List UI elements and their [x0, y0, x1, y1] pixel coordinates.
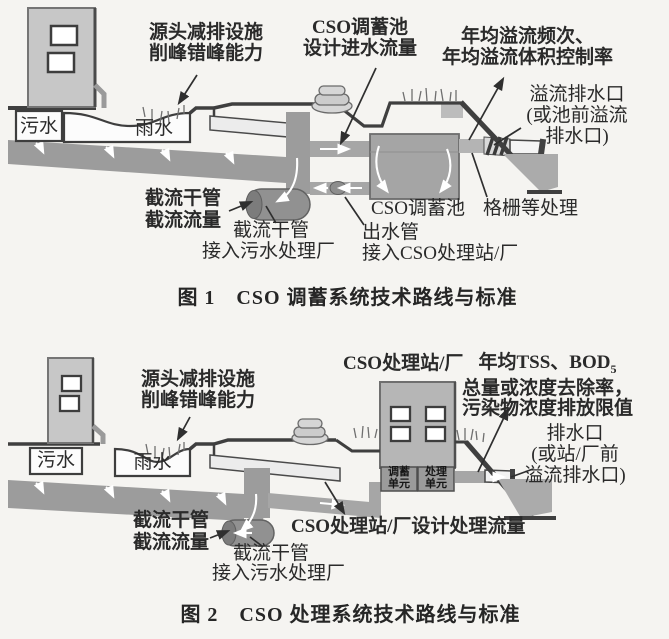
pipe-end-cap	[246, 191, 262, 219]
lid-feature-pile	[312, 86, 352, 113]
f2-interception-label: 截流干管 截流流量	[124, 510, 218, 554]
f2-source-line2: 削峰错峰能力	[118, 390, 278, 411]
plant-window	[426, 407, 445, 421]
cso-storage-tank	[370, 134, 459, 199]
plant-window	[391, 407, 410, 421]
f2-treatment-unit-label: 处理 单元	[418, 467, 454, 490]
f1-source-line2: 削峰错峰能力	[126, 43, 286, 64]
lid-feature-pile	[292, 419, 328, 445]
f1-overflow-outfall-label: 溢流排水口 (或池前溢流 排水口)	[506, 84, 648, 147]
f1-source-reduction-label: 源头减排设施 削峰错峰能力	[126, 22, 286, 64]
f2-design-flow-label: CSO处理站/厂设计处理流量	[291, 516, 525, 537]
plant-riser-pipe	[369, 482, 381, 512]
f1-source-line1: 源头减排设施	[126, 22, 286, 43]
f2-tss-line2: 总量或浓度去除率，	[445, 379, 650, 399]
f1-overflow-line1: 年均溢流频次、	[425, 26, 630, 47]
f2-interceptor-dest-label: 接入污水处理厂	[212, 563, 345, 584]
plant-feed-pipe	[268, 493, 381, 518]
f1-rain-label: 雨水	[118, 118, 190, 139]
f2-rain-label: 雨水	[115, 452, 190, 473]
downspout	[93, 426, 103, 444]
storm-pipe	[210, 116, 288, 137]
storm-pipe	[210, 455, 340, 481]
drop-shaft	[286, 112, 310, 194]
f2-outfall-line2: (或站/厂前	[504, 444, 646, 465]
plant-outfall-pipe	[455, 471, 485, 483]
building-window	[51, 26, 77, 45]
building-window	[60, 396, 79, 411]
f1-intercept-line2: 截流流量	[136, 210, 230, 232]
figure1-caption: 图 1 CSO 调蓄系统技术路线与标准	[13, 281, 669, 310]
building-window	[48, 53, 74, 72]
f2-interceptor-pipe-label: 截流干管	[233, 543, 309, 564]
f1-intercept-line1: 截流干管	[136, 188, 230, 210]
f2-outfall-line3: 溢流排水口)	[504, 465, 646, 486]
f1-overflow-control-label: 年均溢流频次、 年均溢流体积控制率	[425, 26, 630, 68]
f1-inflow-line2: 设计进水流量	[290, 38, 430, 59]
f2-unit2-line2: 单元	[418, 479, 454, 491]
tank-top-channel	[459, 139, 485, 153]
f1-overflow-line2: 年均溢流体积控制率	[425, 47, 630, 68]
f2-outfall-label: 排水口 (或站/厂前 溢流排水口)	[504, 423, 646, 486]
right-bank	[441, 103, 463, 118]
interceptor-sewer-band	[8, 140, 286, 183]
f2-unit2-line1: 处理	[418, 467, 454, 479]
cso-diagram-page: 源头减排设施 削峰错峰能力 CSO调蓄池 设计进水流量 年均溢流频次、 年均溢流…	[0, 0, 669, 639]
f1-outfall-line1: 溢流排水口	[506, 84, 648, 105]
f1-interceptor-dest-label: 接入污水处理厂	[202, 241, 335, 262]
f2-tss-line1: 年均TSS、BOD5	[445, 353, 650, 379]
f1-sewage-label: 污水	[16, 116, 62, 137]
f1-screen-label: 格栅等处理	[483, 198, 578, 219]
f1-outfall-line2: (或池前溢流	[506, 105, 648, 126]
f2-tss-line1-text: 年均TSS、BOD	[479, 352, 611, 373]
building-window	[62, 376, 81, 391]
f1-tank-name-label: CSO调蓄池	[371, 198, 465, 219]
f1-outpipe-dest-label: 接入CSO处理站/厂	[362, 243, 518, 264]
f2-intercept-line2: 截流流量	[124, 532, 218, 554]
f1-inflow-line1: CSO调蓄池	[290, 17, 430, 38]
f2-sewage-label: 污水	[30, 450, 82, 471]
f1-tank-inflow-label: CSO调蓄池 设计进水流量	[290, 17, 430, 59]
f2-storage-unit-label: 调蓄 单元	[381, 467, 417, 490]
f2-unit1-line2: 单元	[381, 479, 417, 491]
f2-unit1-line1: 调蓄	[381, 467, 417, 479]
f2-tss-line1-sub: 5	[610, 362, 616, 376]
f1-interception-label: 截流干管 截流流量	[136, 188, 230, 232]
f2-outfall-line1: 排水口	[504, 423, 646, 444]
f1-interceptor-pipe-label: 截流干管	[233, 220, 309, 241]
f2-intercept-line1: 截流干管	[124, 510, 218, 532]
f1-outfall-line3: 排水口)	[506, 126, 648, 147]
plant-window	[426, 427, 445, 441]
f2-tss-line3: 污染物浓度排放限值	[445, 399, 650, 419]
treatment-plant-building	[380, 382, 455, 468]
f1-outpipe-label: 出水管	[362, 222, 419, 243]
figure2-caption: 图 2 CSO 处理系统技术路线与标准	[16, 598, 669, 627]
plant-window	[391, 427, 410, 441]
f2-source-reduction-label: 源头减排设施 削峰错峰能力	[118, 369, 278, 411]
f2-source-line1: 源头减排设施	[118, 369, 278, 390]
f2-tss-standard-label: 年均TSS、BOD5 总量或浓度去除率， 污染物浓度排放限值	[445, 353, 650, 419]
receiving-water	[503, 154, 558, 192]
